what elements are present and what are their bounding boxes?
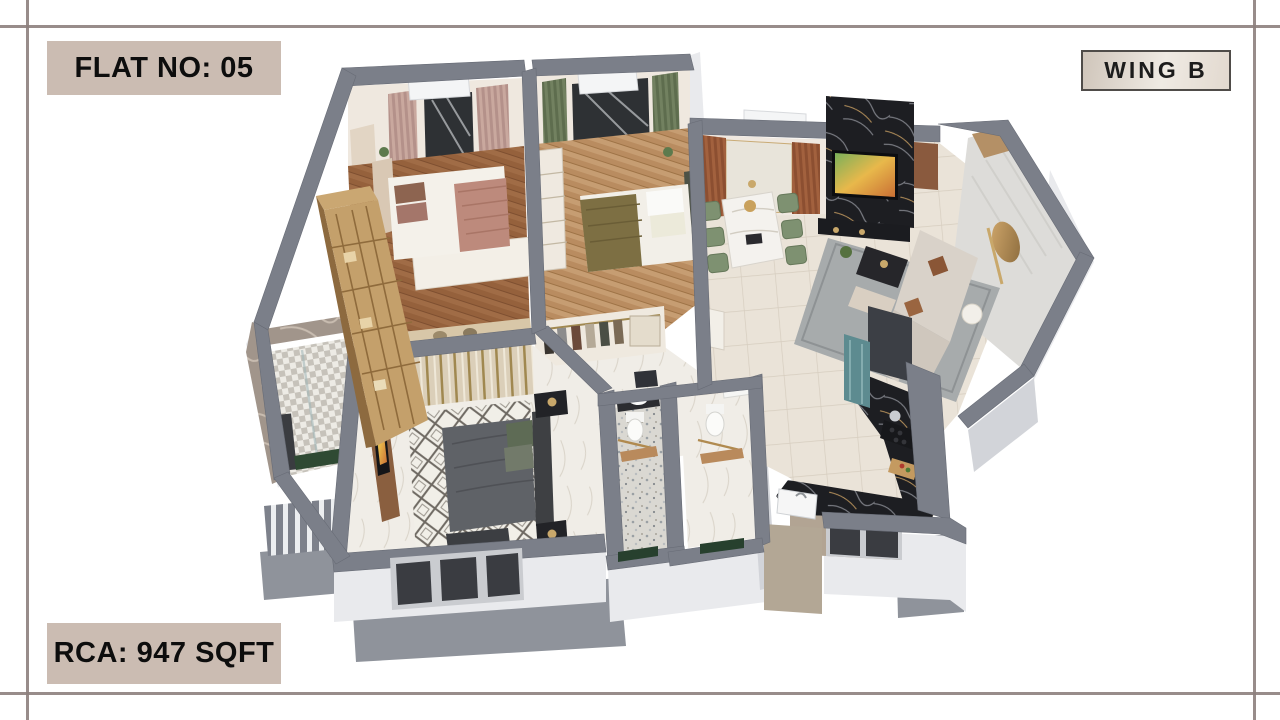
bed-2-blanket [580,194,642,272]
toilet [706,412,724,436]
dining-chair [707,253,729,273]
master-pillow [504,444,534,472]
dining-chair [777,193,799,213]
shower-panel [634,370,658,388]
frame-line-right [1253,0,1256,720]
rca-area-badge: RCA: 947 SQFT [47,623,281,684]
bathroom-2 [680,378,758,548]
wing-badge: WING B [1081,50,1231,91]
tv-screen [835,153,895,197]
table-lamp [548,530,557,539]
flat-number-badge: FLAT NO: 05 [47,41,281,95]
fruit-bowl [744,200,756,212]
frame-line-left [26,0,29,720]
tray [746,233,763,245]
rca-area-label: RCA: 947 SQFT [54,637,275,670]
pendant-light [748,180,756,188]
wing-label: WING B [1104,57,1208,84]
tv-unit [818,96,914,242]
plant [379,147,389,157]
utility-shaft [764,524,822,614]
table-lamp [548,398,557,407]
frame-line-bottom [0,692,1280,695]
tall-cabinet [868,306,912,382]
pan [890,411,901,422]
corner-curtain [914,142,938,190]
bedroom-2 [528,70,712,342]
plant [663,147,673,157]
floor-plan-render [0,0,1280,720]
side-table [962,304,982,324]
flat-number-label: FLAT NO: 05 [75,52,254,85]
teal-glass-partition [844,334,870,408]
dining-chair [781,219,803,239]
bed-2-pillow [650,212,686,238]
page: { "labels": { "flat_no": "FLAT NO: 05", … [0,0,1280,720]
dining-chair [785,245,807,265]
bed-2-pillow [646,188,684,216]
toilet [627,419,643,441]
master-window [390,548,524,610]
plant [840,246,852,258]
frame-line-top [0,25,1280,28]
